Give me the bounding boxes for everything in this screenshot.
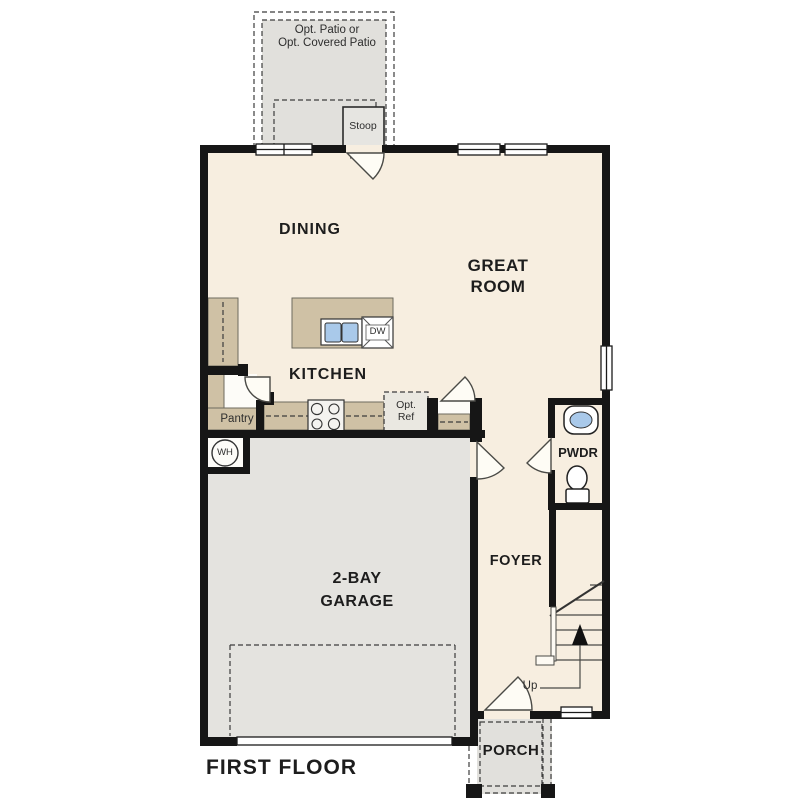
powder-room-label: PWDR <box>558 445 598 460</box>
stair-railing <box>551 607 556 661</box>
wall <box>548 398 610 405</box>
wall <box>200 737 237 746</box>
wall <box>238 364 248 376</box>
garage-label: 2-BAY GARAGE <box>320 567 393 613</box>
wall <box>200 430 485 438</box>
wall <box>470 398 482 442</box>
porch-post <box>466 784 482 798</box>
window <box>561 707 592 718</box>
optional-refrigerator-label: Opt. Ref <box>396 399 416 423</box>
floor-plan: Opt. Patio or Opt. Covered Patio Stoop D… <box>0 0 810 810</box>
garage-door <box>237 737 452 745</box>
stove-icon <box>308 400 344 432</box>
foyer-label: FOYER <box>490 553 542 569</box>
porch-post <box>541 784 555 798</box>
wall <box>548 503 610 510</box>
stoop-label: Stoop <box>349 120 376 132</box>
window <box>601 346 612 390</box>
wall <box>470 477 478 737</box>
dishwasher-label: DW <box>370 326 386 337</box>
wall <box>452 737 478 746</box>
wall <box>602 145 610 719</box>
wall <box>427 398 438 430</box>
great-room-label: GREAT ROOM <box>468 255 529 297</box>
window <box>256 144 312 155</box>
toilet-icon <box>566 466 589 503</box>
dining-label: DINING <box>279 221 341 239</box>
stairs-up-label: Up <box>523 680 538 692</box>
pantry-label: Pantry <box>220 413 253 425</box>
nook-floor <box>436 400 470 414</box>
optional-patio-label: Opt. Patio or Opt. Covered Patio <box>278 24 376 49</box>
window <box>505 144 547 155</box>
wall <box>207 467 250 474</box>
wall <box>200 145 208 746</box>
water-heater-label: WH <box>217 447 233 458</box>
left-cabinet-run <box>208 298 238 366</box>
island-sink-icon <box>321 319 362 345</box>
wall <box>548 405 555 438</box>
floor-title: FIRST FLOOR <box>206 756 357 780</box>
stair-newel <box>536 656 554 665</box>
porch-label: PORCH <box>483 742 540 759</box>
wall <box>549 510 556 607</box>
kitchen-label: KITCHEN <box>289 366 367 384</box>
window <box>458 144 500 155</box>
powder-sink-icon <box>564 406 598 434</box>
